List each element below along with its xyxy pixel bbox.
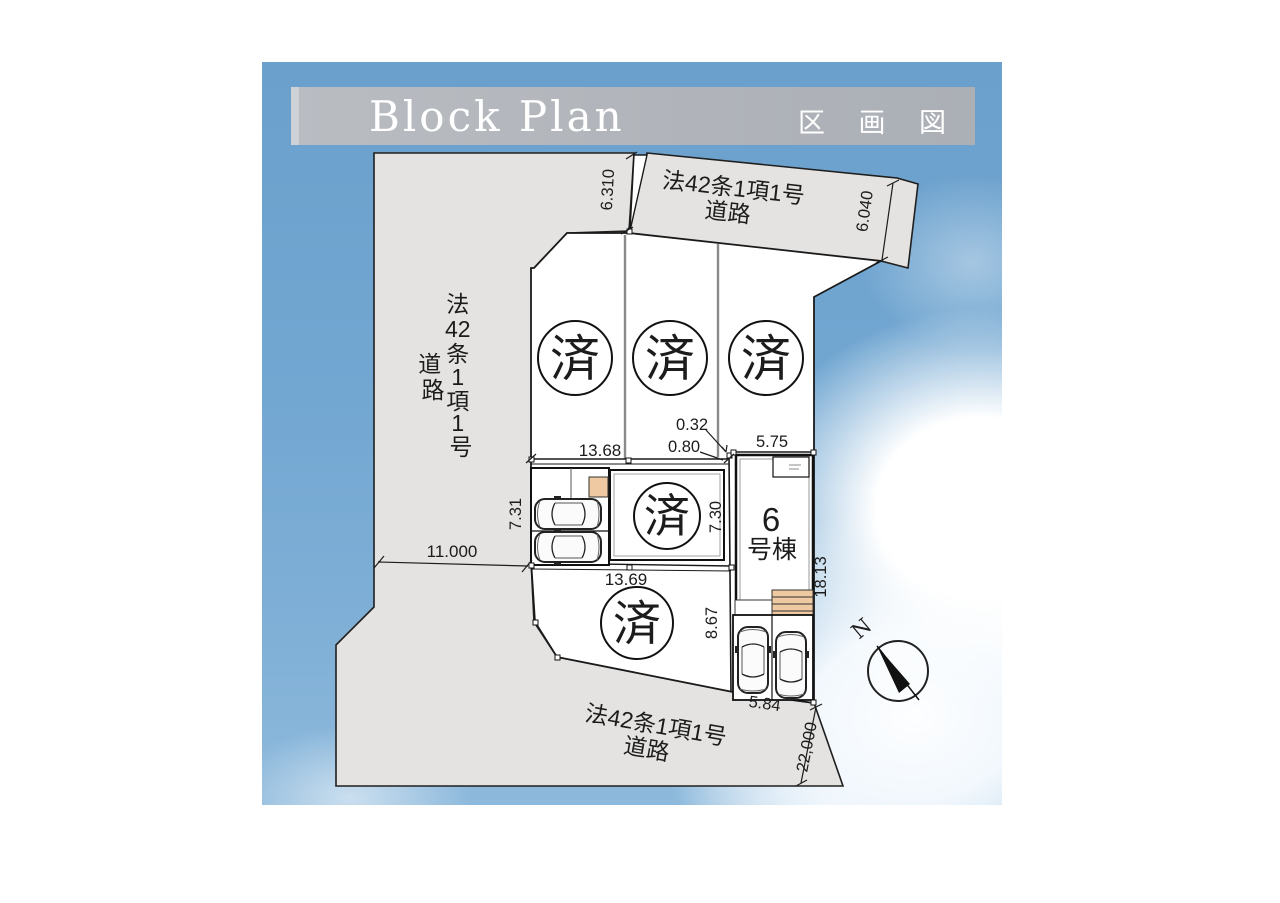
svg-text:済: 済 [741, 331, 791, 387]
unit6-number: 6 [762, 501, 780, 538]
dim-left-road: 11.000 [427, 542, 478, 561]
dim-lot6-frontage: 5.75 [756, 433, 788, 451]
svg-text:道 路: 道 路 [418, 351, 447, 403]
dim-neck: 6.310 [598, 169, 618, 211]
sold-badge-3: 済 [729, 321, 803, 395]
dim-house-depth: 7.30 [707, 501, 725, 533]
sold-badge-2: 済 [633, 321, 707, 395]
header-accent-strip [291, 87, 299, 145]
site-plan: 済 済 済 済 済 6 号棟 [262, 62, 1002, 805]
building-6-notch [773, 457, 809, 477]
dim-lower-width: 13.69 [605, 570, 648, 589]
entrance-porch [589, 477, 608, 497]
page-title: Block Plan [369, 91, 625, 143]
sky-photo-background: 済 済 済 済 済 6 号棟 [262, 62, 1002, 805]
svg-text:済: 済 [550, 331, 600, 387]
svg-text:済: 済 [613, 598, 661, 651]
building-6-stairs [772, 590, 813, 617]
dim-lot6-depth: 18.13 [812, 556, 830, 597]
north-label: N [847, 614, 877, 644]
sold-badge-4: 済 [634, 483, 700, 549]
header-bar: Block Plan 区 画 図 [291, 87, 975, 145]
svg-text:道路: 道路 [703, 197, 752, 228]
car-icon [535, 496, 601, 532]
unit6-label: 号棟 [747, 536, 797, 564]
svg-text:済: 済 [644, 490, 690, 542]
page-title-japanese: 区 画 図 [798, 101, 959, 140]
sold-badge-5: 済 [601, 587, 673, 659]
dim-bottom-lot-depth: 8.67 [703, 607, 721, 639]
dim-gap-a: 0.32 [676, 416, 708, 434]
dim-gap-b: 0.80 [668, 438, 700, 456]
svg-text:済: 済 [645, 331, 695, 387]
car-icon [535, 529, 601, 565]
car-icon [735, 627, 771, 693]
sold-badge-1: 済 [538, 321, 612, 395]
dim-upper-width: 13.68 [579, 441, 622, 460]
compass: N [847, 614, 928, 701]
dim-parking-depth: 7.31 [507, 498, 525, 530]
car-icon [773, 632, 809, 698]
page: 済 済 済 済 済 6 号棟 [0, 0, 1280, 903]
